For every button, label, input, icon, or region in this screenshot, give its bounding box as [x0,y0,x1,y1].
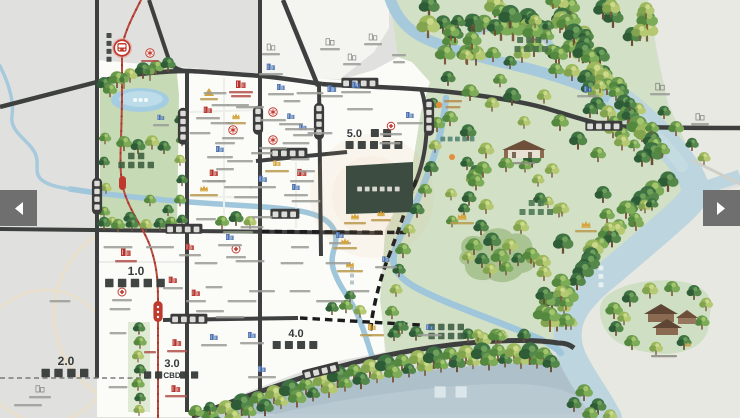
svg-text:1.0: 1.0 [128,264,145,278]
svg-text:CBD: CBD [163,371,181,380]
svg-text:4.0: 4.0 [288,328,303,340]
svg-text:5.0: 5.0 [347,128,362,140]
svg-text:2.0: 2.0 [58,354,75,368]
svg-text:3.0: 3.0 [164,358,179,370]
